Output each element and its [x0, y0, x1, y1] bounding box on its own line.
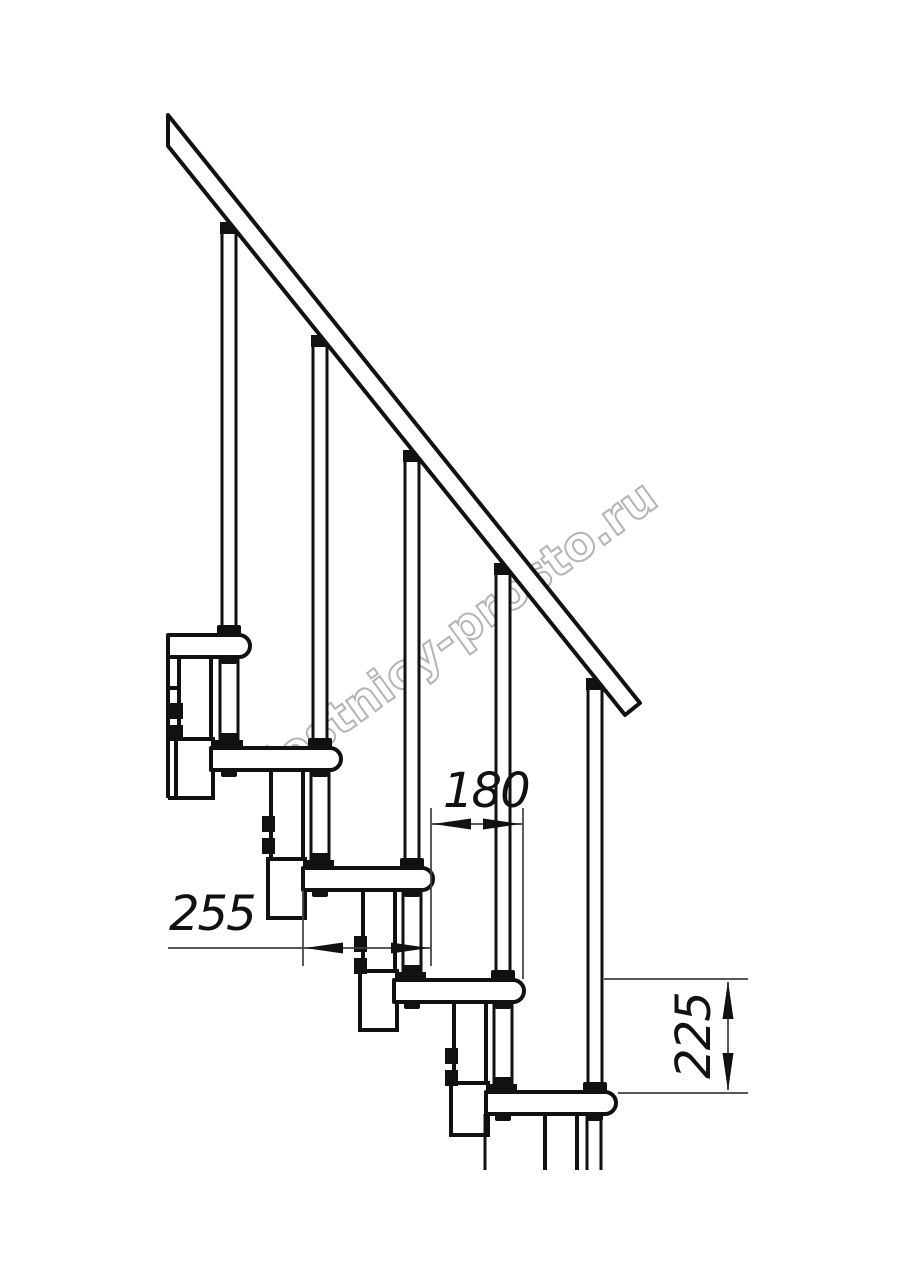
bolt [312, 768, 328, 777]
connector-tab [447, 1050, 456, 1062]
connector-tab [264, 818, 273, 830]
baluster-foot [217, 625, 241, 637]
support-tube [215, 657, 243, 749]
support-tube [306, 770, 334, 869]
bolt [221, 768, 237, 777]
support-tube-cut [587, 1114, 601, 1170]
baluster [217, 222, 241, 637]
dimension-label-rise: 225 [666, 993, 722, 1079]
tread [486, 1092, 616, 1114]
baluster [583, 678, 607, 1094]
bolt [495, 1000, 511, 1009]
connector-tab [447, 1072, 456, 1084]
bolt [312, 888, 328, 897]
tread [394, 980, 524, 1002]
module-column [168, 657, 213, 798]
baluster-foot [308, 738, 332, 750]
support-tube [489, 1002, 517, 1093]
baluster-foot [400, 858, 424, 870]
support-tube [398, 890, 426, 981]
connector-tab [264, 840, 273, 852]
tread [168, 635, 250, 657]
dimension-label-going: 180 [443, 763, 529, 819]
bolt [404, 1000, 420, 1009]
arrowhead-left [433, 819, 471, 830]
arrowhead-down [723, 1053, 734, 1091]
bolt [221, 655, 237, 664]
module-column [264, 770, 305, 918]
dimension-rise: 225 [604, 979, 748, 1093]
module-column-cut [485, 1113, 577, 1170]
connector-tab [356, 960, 365, 972]
tread [303, 868, 433, 890]
arrowhead-up [723, 981, 734, 1019]
dimension-label-tread-depth: 255 [169, 886, 255, 942]
baluster [400, 450, 424, 870]
baluster [308, 335, 332, 750]
connector-tab [172, 727, 181, 739]
tread [211, 748, 341, 770]
arrowhead-left [305, 943, 343, 954]
bolt [404, 888, 420, 897]
connector-tab [172, 705, 181, 717]
baluster-foot [491, 970, 515, 982]
module-column [447, 1002, 488, 1135]
bolt [587, 1112, 603, 1121]
baluster-foot [583, 1082, 607, 1094]
staircase-diagram: lestnicy-prosto.ru [0, 0, 914, 1280]
drawing-canvas: lestnicy-prosto.ru [0, 0, 914, 1280]
bolt [495, 1112, 511, 1121]
dimension-going: 180 [431, 763, 529, 979]
module-column [356, 890, 397, 1030]
